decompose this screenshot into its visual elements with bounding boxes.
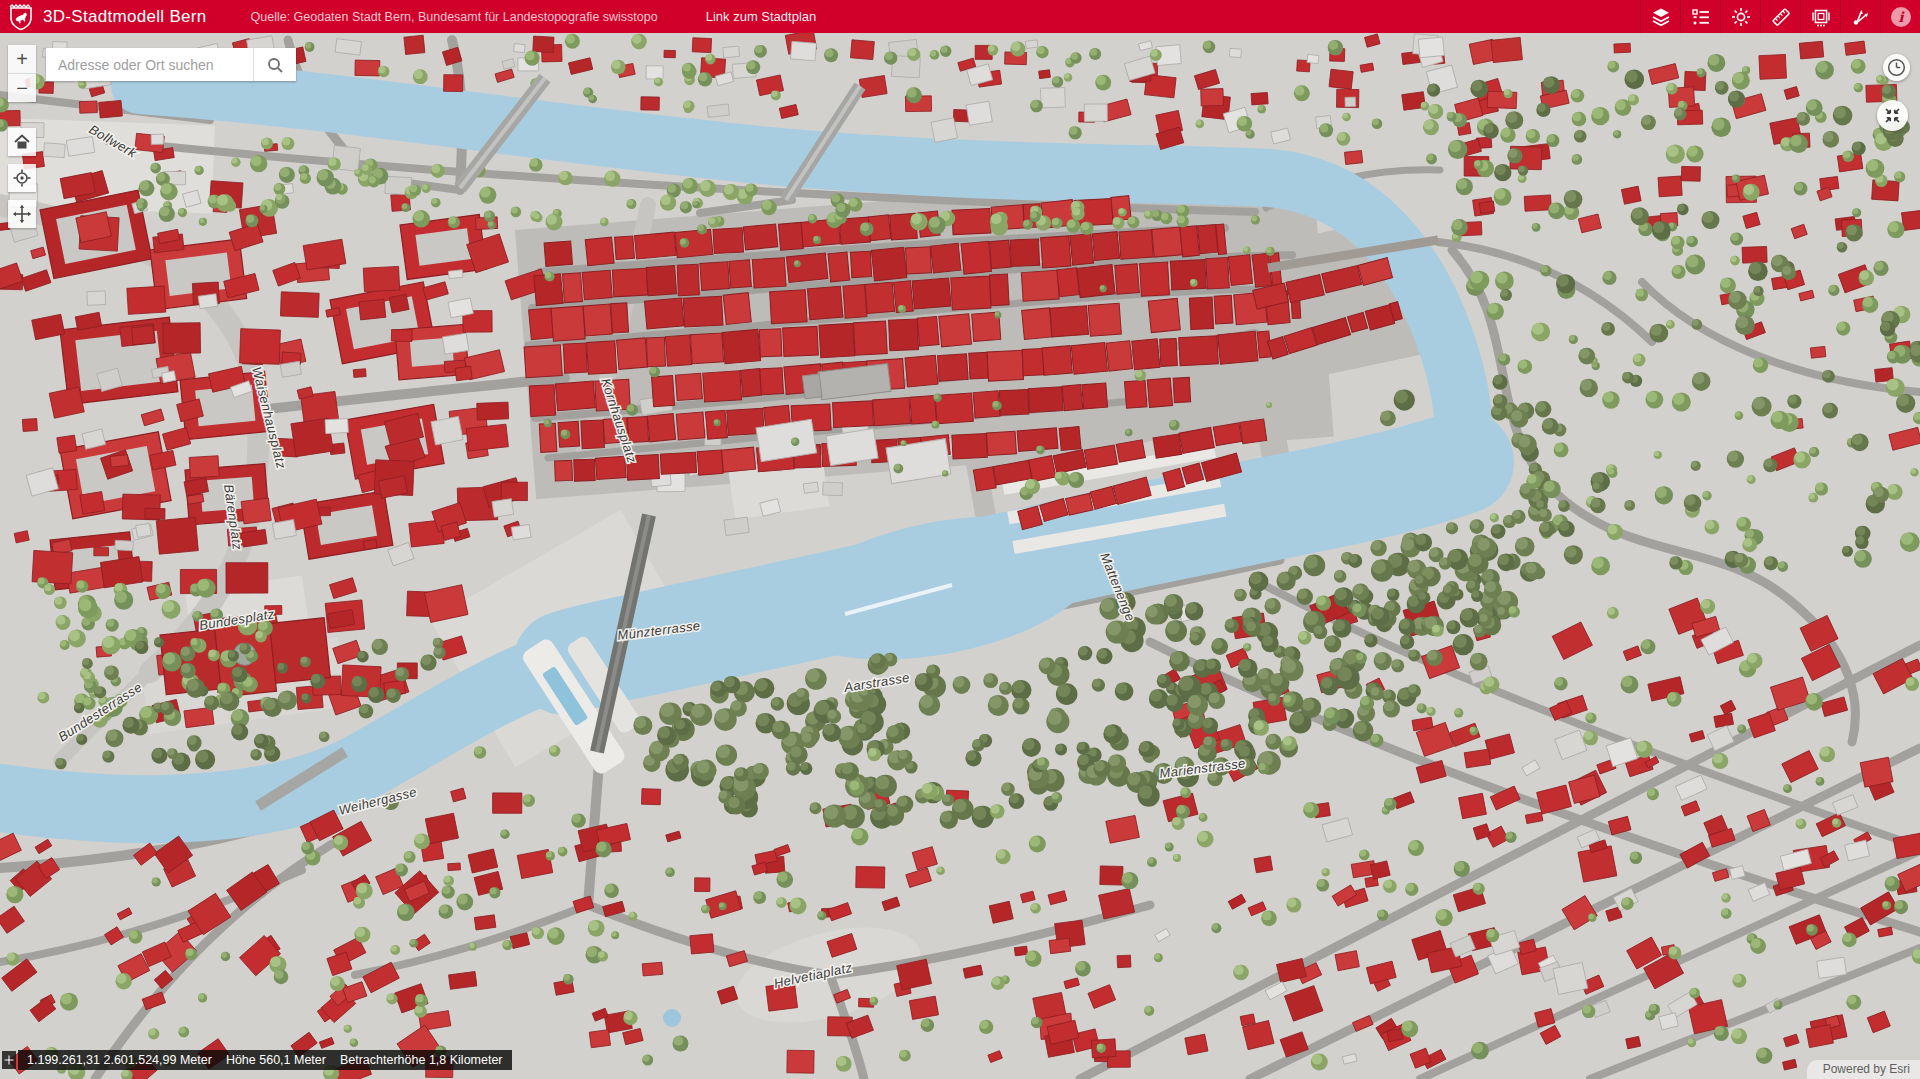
terrain-height-value: Höhe 560,1 Meter <box>226 1053 326 1067</box>
app-header: 3D-Stadtmodell Bern Quelle: Geodaten Sta… <box>0 0 1920 33</box>
stadtplan-link[interactable]: Link zum Stadtplan <box>706 9 817 24</box>
recenter-navigation-button[interactable] <box>1877 100 1908 131</box>
legend-tool-button[interactable] <box>1680 0 1720 33</box>
map-viewport[interactable]: BollwerkWaisenhausplatzKornhausplatzBäre… <box>0 33 1920 1079</box>
search-button[interactable] <box>253 48 296 81</box>
coordinates-value: 1.199.261,31 2.601.524,99 Meter <box>27 1053 212 1067</box>
zoom-in-button[interactable]: + <box>8 45 36 73</box>
coordinate-tracking-icon[interactable] <box>2 1051 16 1069</box>
pan-move-icon <box>12 204 32 224</box>
info-icon: i <box>1889 5 1913 29</box>
bern-coat-of-arms-logo <box>8 2 34 31</box>
info-tool-button[interactable]: i <box>1880 0 1920 33</box>
clock-icon <box>1887 58 1906 77</box>
layers-tool-button[interactable] <box>1640 0 1680 33</box>
bern-logo-icon <box>8 2 34 31</box>
pan-button[interactable] <box>8 200 36 228</box>
share-tool-button[interactable] <box>1840 0 1880 33</box>
measure-icon <box>1770 6 1792 28</box>
slides-tool-button[interactable] <box>1800 0 1840 33</box>
header-toolbar: i <box>1640 0 1920 33</box>
zoom-controls: + − <box>8 45 36 102</box>
search-box <box>46 48 296 81</box>
recenter-icon <box>1882 105 1903 126</box>
coordinate-statusbar: 1.199.261,31 2.601.524,99 Meter Höhe 560… <box>18 1050 512 1070</box>
locate-button[interactable] <box>8 164 36 192</box>
layers-icon <box>1650 6 1672 28</box>
measure-tool-button[interactable] <box>1760 0 1800 33</box>
share-icon <box>1850 6 1872 28</box>
daylight-time-button[interactable] <box>1883 54 1910 81</box>
move-cross-icon <box>4 1055 14 1065</box>
source-attribution: Quelle: Geodaten Stadt Bern, Bundesamt f… <box>251 10 658 24</box>
zoom-out-button[interactable]: − <box>8 73 36 102</box>
locate-icon <box>12 168 32 188</box>
search-input[interactable] <box>46 48 253 81</box>
legend-icon <box>1690 6 1712 28</box>
slides-icon <box>1810 6 1832 28</box>
daylight-icon <box>1730 6 1752 28</box>
app-title: 3D-Stadtmodell Bern <box>43 7 207 27</box>
viewer-height-value: Betrachterhöhe 1,8 Kilometer <box>340 1053 503 1067</box>
app-root: 3D-Stadtmodell Bern Quelle: Geodaten Sta… <box>0 0 1920 1079</box>
search-icon <box>266 56 284 74</box>
home-icon <box>13 133 31 151</box>
map-scene: BollwerkWaisenhausplatzKornhausplatzBäre… <box>0 33 1920 1079</box>
home-button[interactable] <box>8 128 36 156</box>
daylight-tool-button[interactable] <box>1720 0 1760 33</box>
esri-attribution: Powered by Esri <box>1807 1060 1920 1079</box>
